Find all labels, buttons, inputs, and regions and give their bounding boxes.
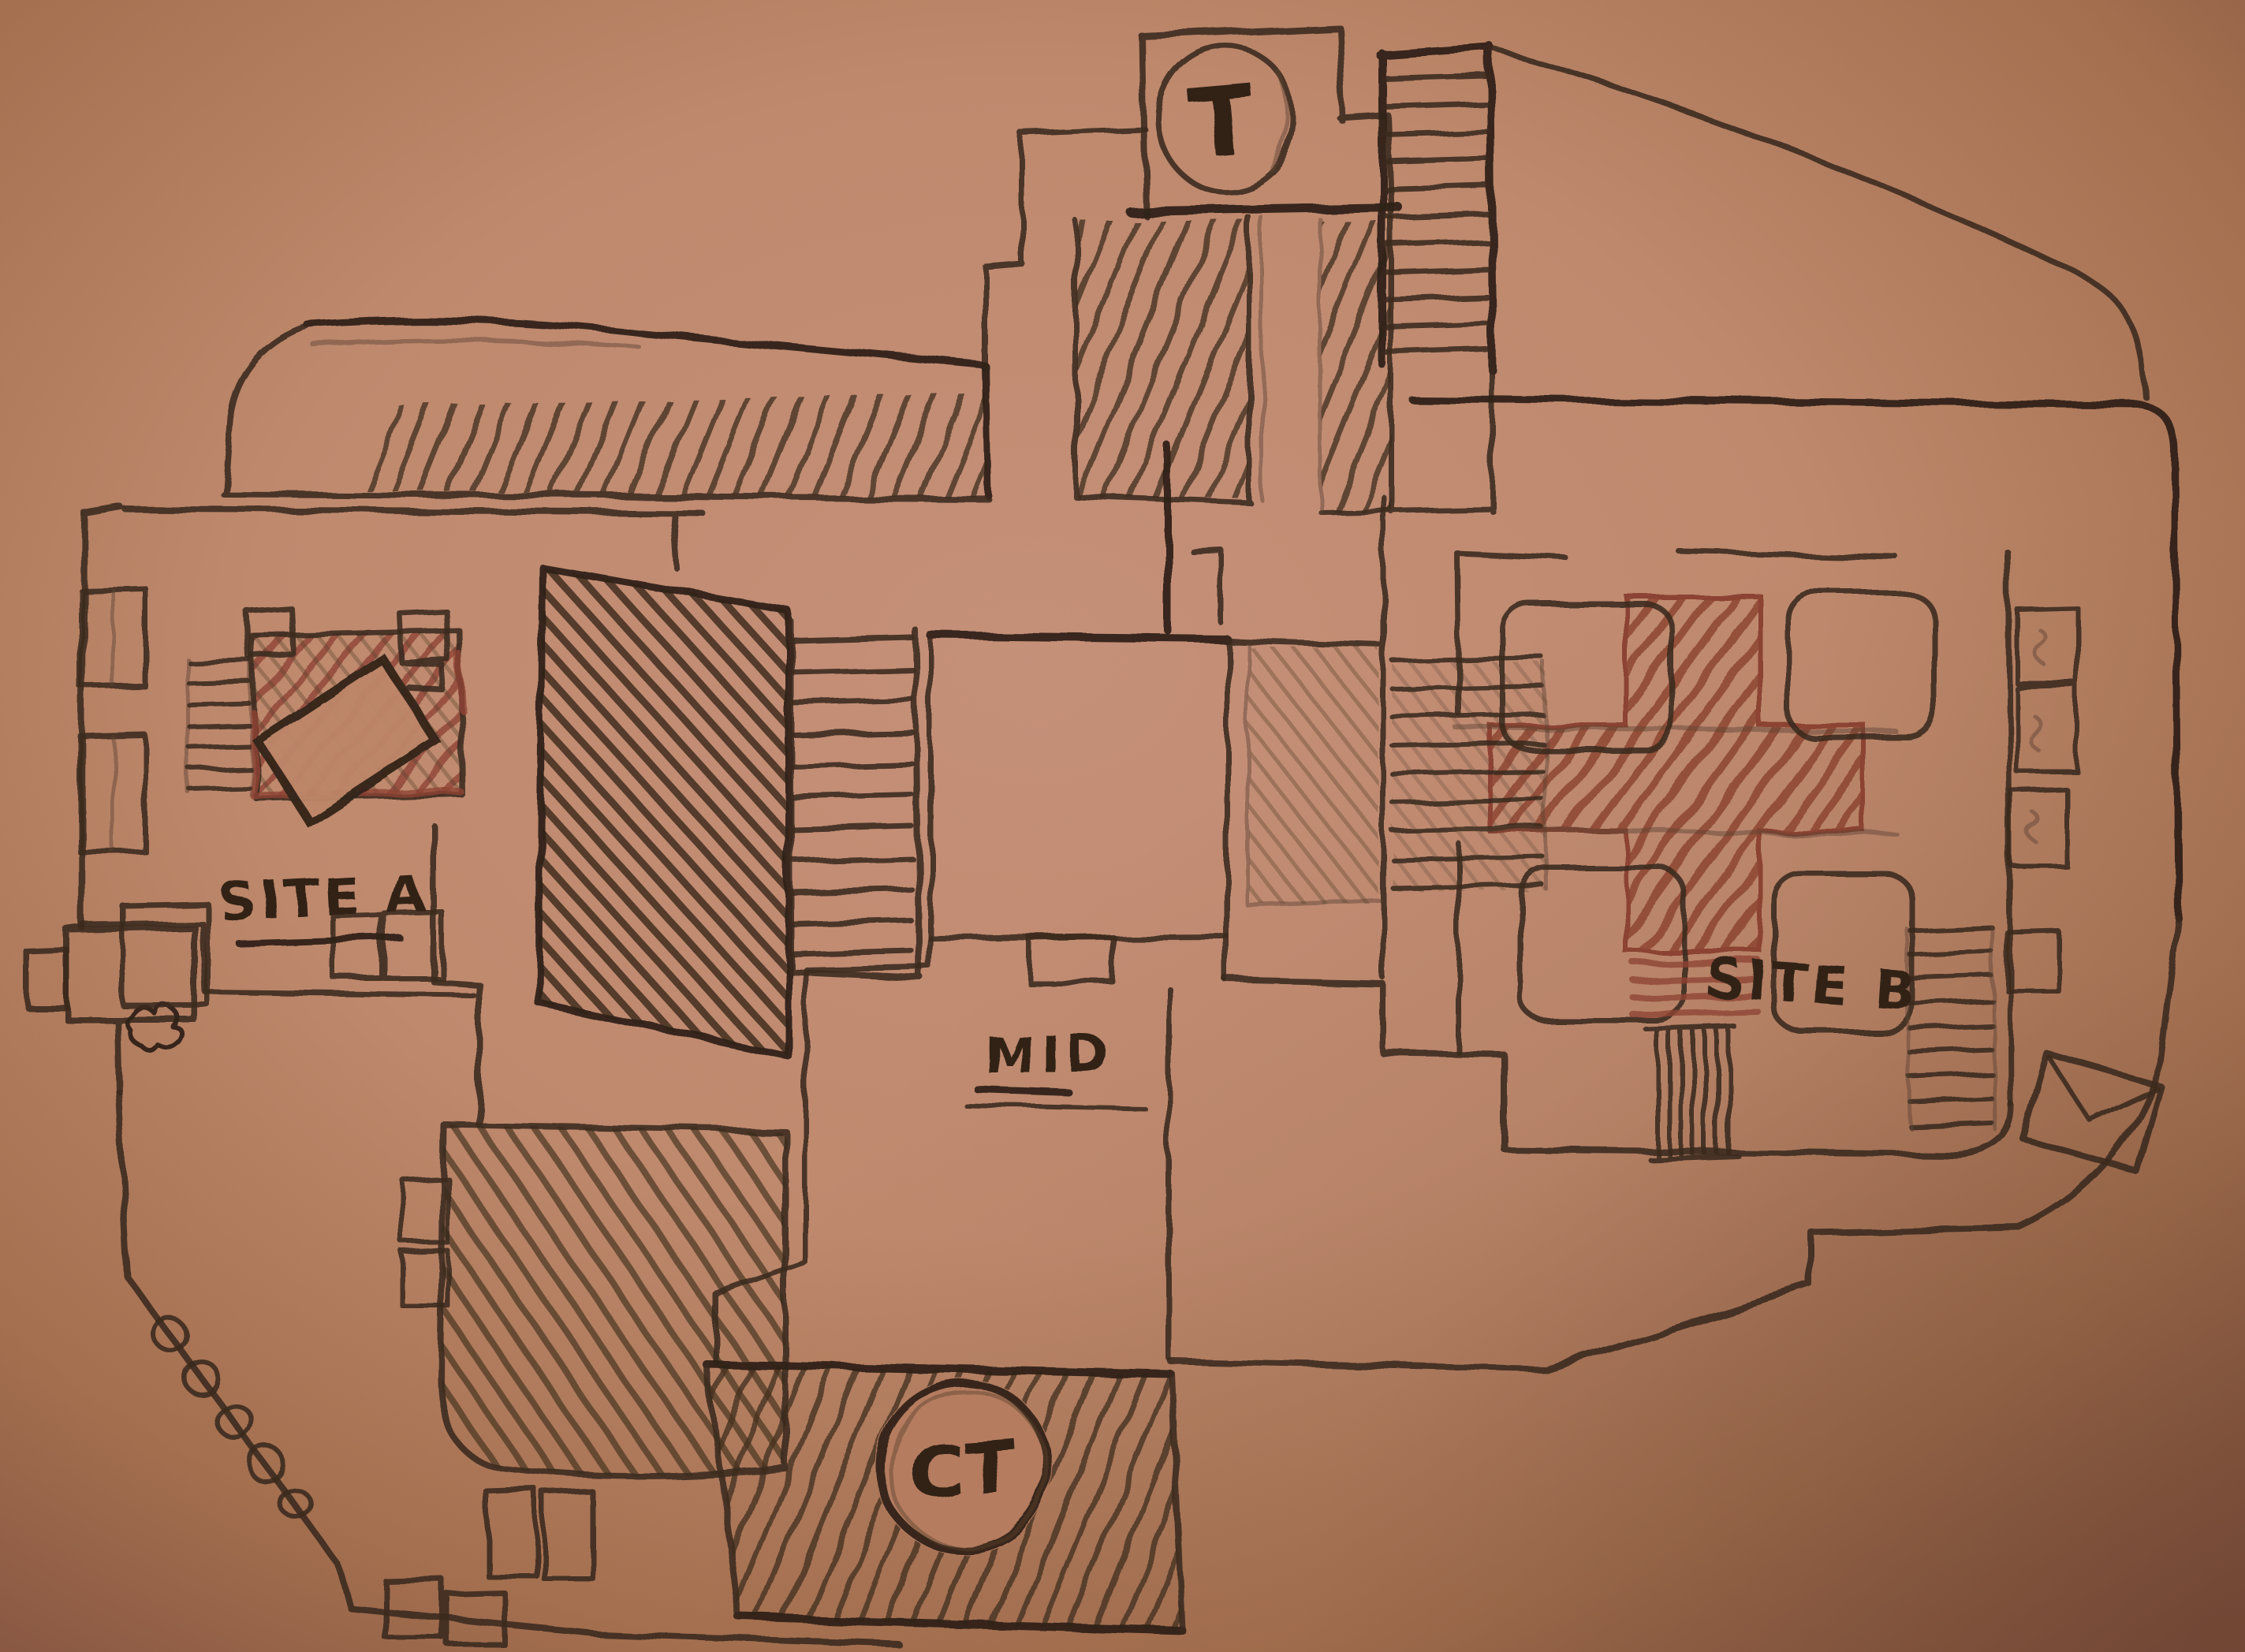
t-spawn-label: T — [1185, 65, 1259, 181]
mid-top-wall — [930, 636, 1227, 639]
mid-underline — [978, 1090, 1069, 1093]
t-corridor-left-hatch — [1077, 221, 1247, 498]
site-a-label: SITE A — [218, 862, 431, 934]
ct-spawn-label: CT — [906, 1423, 1019, 1518]
upper-corridor-hatch — [351, 393, 986, 497]
sketch-photo: T CT SITE A SITE B MID — [0, 0, 2245, 1652]
ramp-hatch — [539, 568, 789, 1057]
t-room-bottom-wall — [1130, 207, 1397, 211]
mid-label: MID — [984, 1027, 1117, 1085]
map-sketch: T CT SITE A SITE B MID — [0, 0, 2245, 1652]
mid-right-connector-hatch — [1249, 647, 1378, 904]
mid-underline-second — [966, 1106, 1145, 1109]
